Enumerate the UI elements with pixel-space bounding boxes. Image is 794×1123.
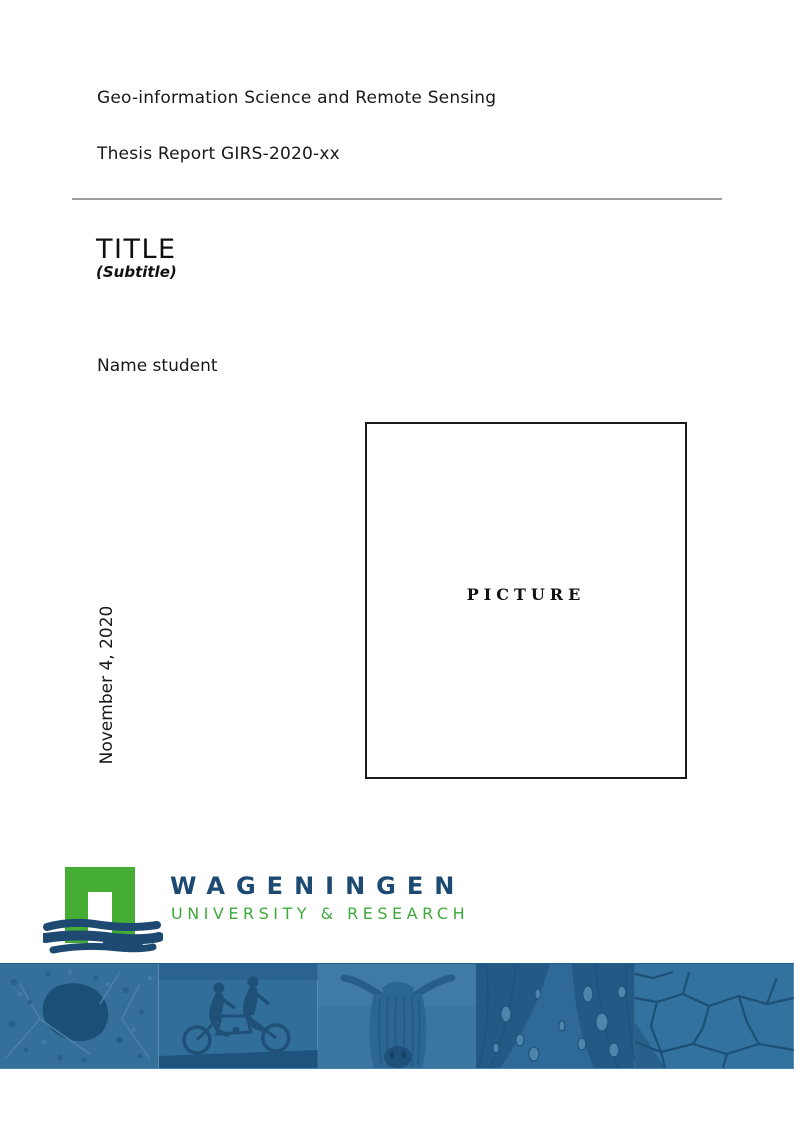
program-name: Geo-information Science and Remote Sensi… — [97, 88, 496, 108]
picture-placeholder-box: PICTURE — [365, 422, 687, 779]
report-number: Thesis Report GIRS-2020-xx — [97, 144, 340, 164]
aerial-map-photo — [0, 964, 159, 1068]
logo-tagline: UNIVERSITY & RESEARCH — [171, 904, 469, 923]
thesis-cover-page: Geo-information Science and Remote Sensi… — [0, 0, 794, 1123]
student-name: Name student — [97, 356, 218, 376]
butterfly-wing-droplets-photo — [476, 964, 635, 1068]
highland-cow-photo — [318, 964, 477, 1068]
thesis-title: TITLE — [96, 234, 177, 265]
thesis-subtitle: (Subtitle) — [96, 263, 177, 281]
tandem-cyclists-photo — [159, 964, 318, 1068]
wageningen-arch-icon — [43, 864, 163, 964]
cracked-earth-photo — [635, 964, 794, 1068]
wageningen-logo: WAGENINGEN UNIVERSITY & RESEARCH — [43, 864, 473, 960]
logo-name: WAGENINGEN — [170, 872, 465, 900]
photo-banner — [0, 963, 794, 1069]
picture-placeholder-label: PICTURE — [467, 585, 586, 604]
date-vertical: November 4, 2020 — [97, 599, 119, 771]
divider-rule — [72, 198, 722, 200]
